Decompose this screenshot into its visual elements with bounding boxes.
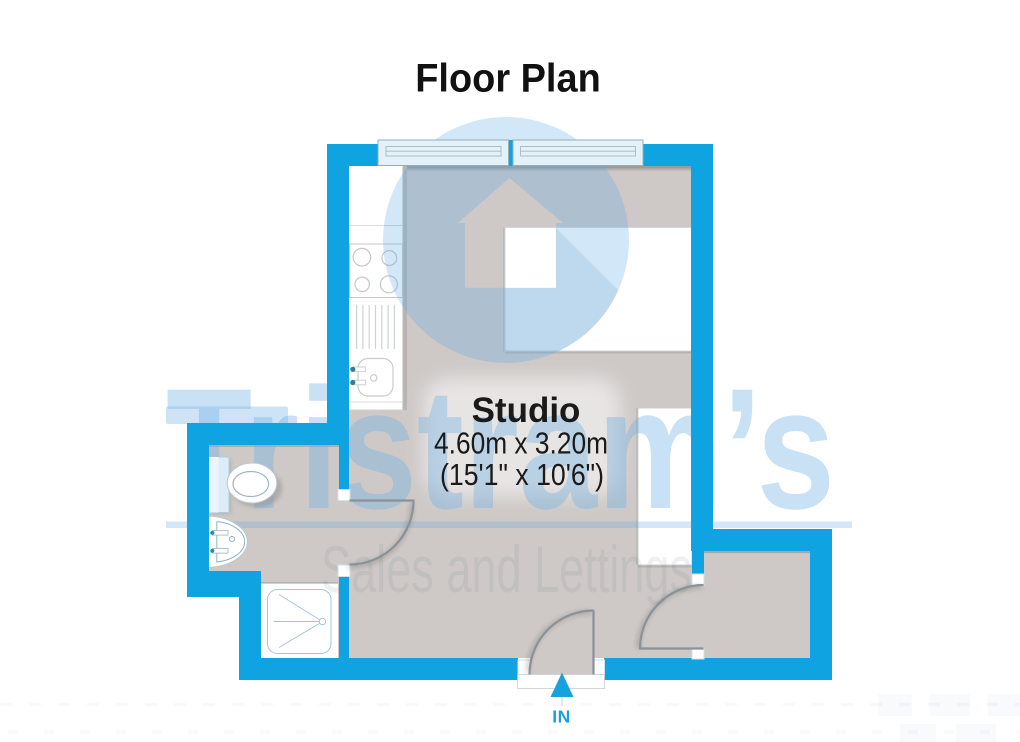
svg-text:IN: IN (552, 707, 571, 727)
svg-text:Sales and Lettings: Sales and Lettings (321, 532, 692, 606)
svg-text:Studio: Studio (472, 391, 581, 430)
svg-text:(15'1" x 10'6"): (15'1" x 10'6") (440, 458, 604, 492)
svg-text:4.60m x 3.20m: 4.60m x 3.20m (434, 427, 608, 461)
svg-text:Floor Plan: Floor Plan (415, 57, 601, 101)
